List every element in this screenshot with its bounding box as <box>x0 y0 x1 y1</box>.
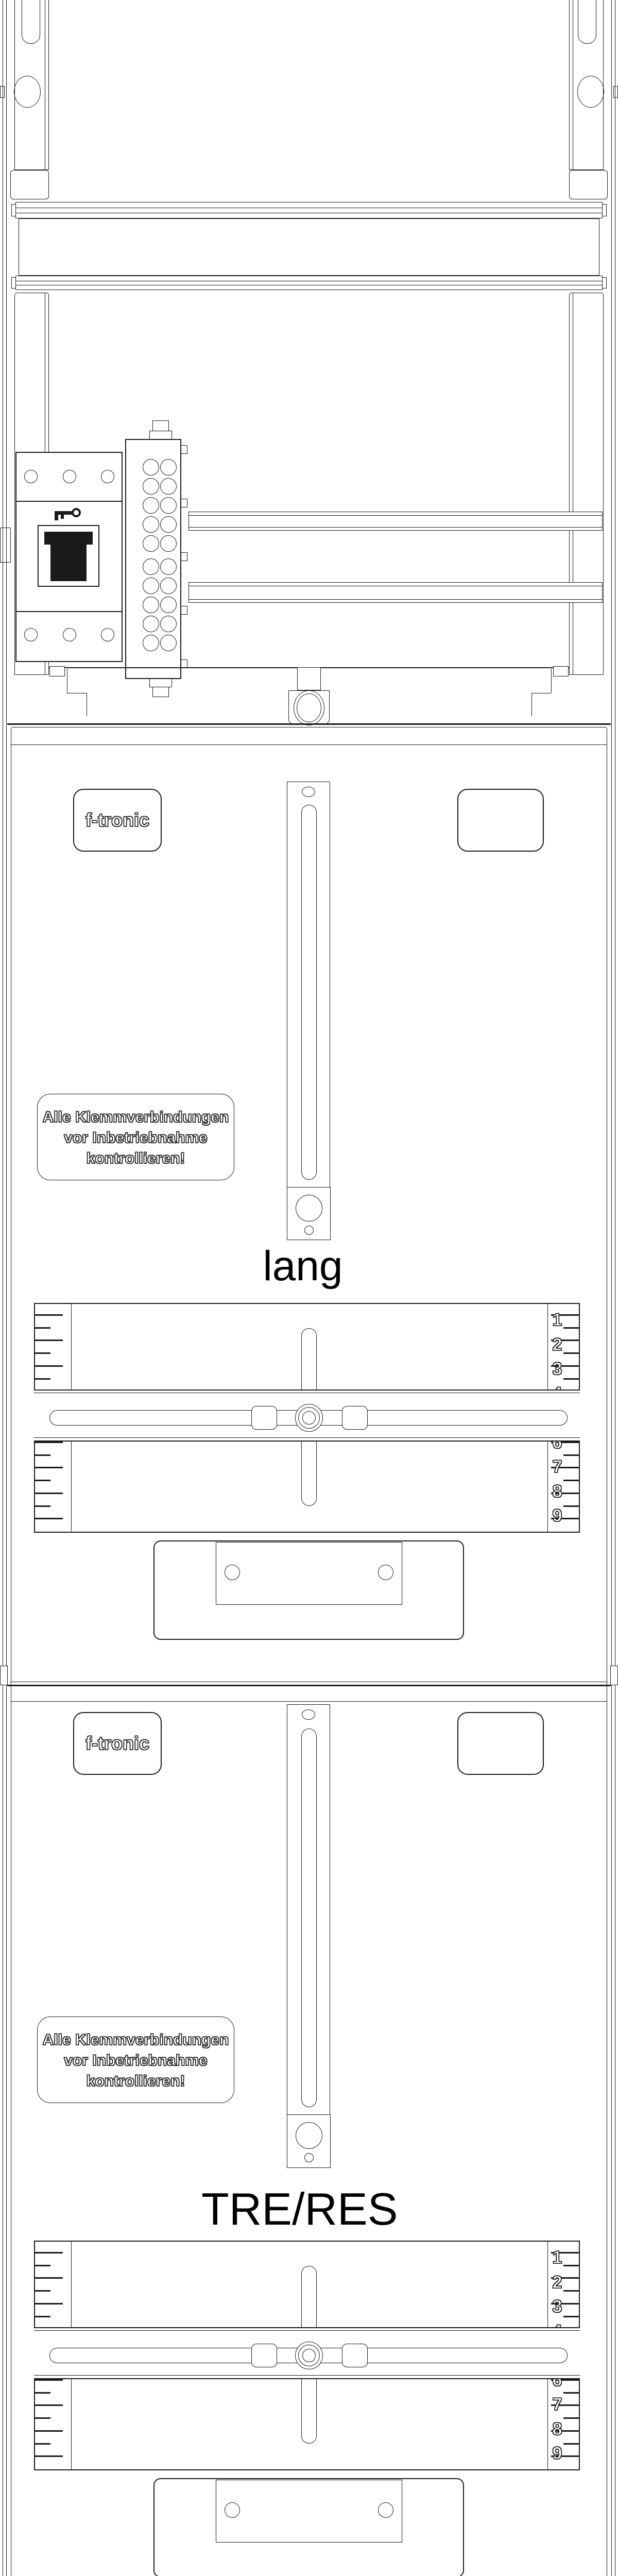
busbars <box>0 0 618 2576</box>
cabinet-technical-drawing: f-tronic Alle Klemmverbindungen vor Inbe… <box>0 0 618 2576</box>
